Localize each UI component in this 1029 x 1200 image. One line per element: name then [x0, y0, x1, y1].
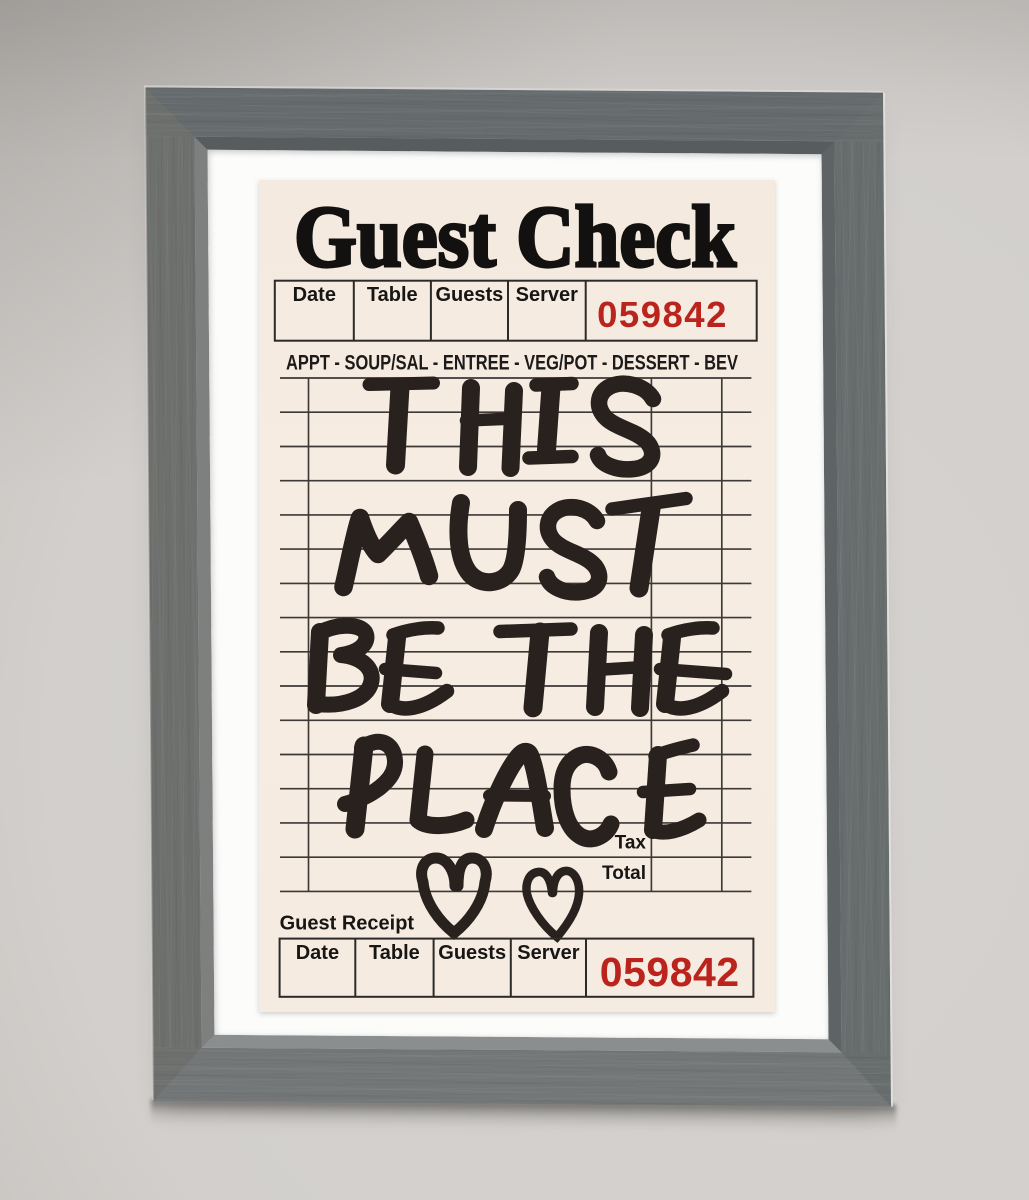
svg-text:059842: 059842: [597, 294, 728, 335]
svg-text:Total: Total: [602, 863, 646, 884]
svg-text:Tax: Tax: [615, 833, 647, 854]
svg-text:Server: Server: [517, 942, 579, 964]
svg-text:Table: Table: [367, 284, 418, 306]
svg-text:Date: Date: [296, 942, 339, 964]
svg-text:Table: Table: [369, 942, 420, 964]
svg-text:Guest Check: Guest Check: [294, 189, 736, 286]
svg-text:Server: Server: [516, 284, 578, 306]
svg-text:Guests: Guests: [438, 942, 506, 964]
svg-text:Guest Receipt: Guest Receipt: [280, 913, 415, 935]
svg-text:APPT - SOUP/SAL - ENTREE - VEG: APPT - SOUP/SAL - ENTREE - VEG/POT - DES…: [286, 352, 738, 375]
svg-text:Guests: Guests: [435, 284, 503, 306]
svg-text:Date: Date: [293, 284, 336, 306]
svg-text:059842: 059842: [600, 949, 740, 995]
